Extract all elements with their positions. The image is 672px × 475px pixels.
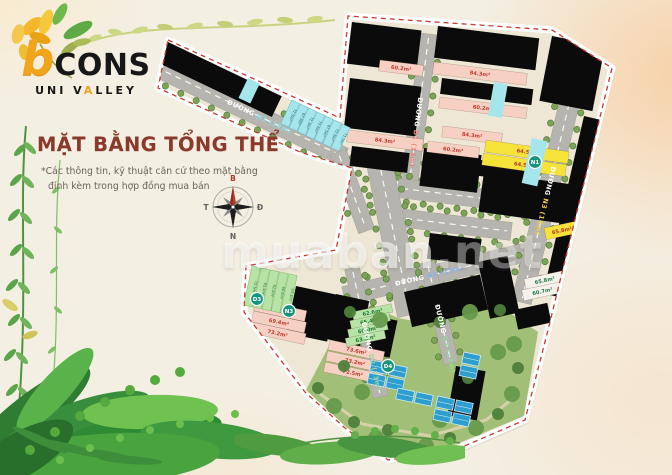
frond-icon [235,425,465,468]
tree [427,109,434,116]
tree [470,207,477,214]
tree [477,212,484,219]
watermark-text: muaban [221,225,435,279]
block-badge-label: D3 [253,297,262,303]
tree [444,208,451,215]
tree-clump [468,420,484,436]
page-title: MẶT BẰNG TỔNG THỂ [37,133,279,156]
tree-clump [344,306,356,318]
page: 84.3m²60.2m²84.3m²60.2m²84.3m²60.2m²75.3… [0,0,672,475]
block-badge: N3 [283,305,296,318]
tree-clump [372,312,388,328]
logo-subtitle: UNI VALLEY [28,84,144,97]
logo-b-glyph: b [21,42,54,77]
tree [494,214,501,221]
brand-logo: bCONS UNI VALLEY [28,42,144,97]
watermark-suffix: .net [435,225,542,279]
tree-clump [494,304,506,316]
tree [406,173,413,180]
block-badge: D4 [382,360,395,373]
tree [437,203,444,210]
watermark: muaban.net [221,225,543,279]
block-badge-label: N3 [285,309,294,315]
tree-clump [312,382,324,394]
tree-clump [512,362,524,374]
tree-clump [504,386,520,402]
tree [429,93,436,100]
tree [425,126,432,133]
tree-clump [462,304,478,320]
compass-label-north: B [230,174,236,183]
tree [420,201,427,208]
logo-cons-text: CONS [54,51,150,81]
tree-clump [492,408,504,420]
tree [461,210,468,217]
tree [427,205,434,212]
block-badge: D3 [251,293,264,306]
block-badge: N1 [529,156,542,169]
tree-clump [338,360,350,372]
tree [410,203,417,210]
block-badge-label: N1 [531,160,540,166]
tree [454,205,461,212]
compass-label-west: T [203,203,209,212]
tree-clump [490,344,506,360]
logo-subtitle-a: A [84,84,96,97]
compass-label-east: Đ [257,203,263,212]
tree [432,76,439,83]
logo-subtitle-post: LLEY [95,84,137,97]
tree [332,178,340,186]
logo-subtitle-pre: UNI V [35,84,84,97]
compass-star [212,186,254,228]
building-block [344,78,422,136]
bottom-center-foliage-decoration [235,395,465,475]
block-badge-label: D4 [384,364,393,370]
brand-logo-wordmark: bCONS [28,42,144,81]
tree-clump [506,336,522,352]
